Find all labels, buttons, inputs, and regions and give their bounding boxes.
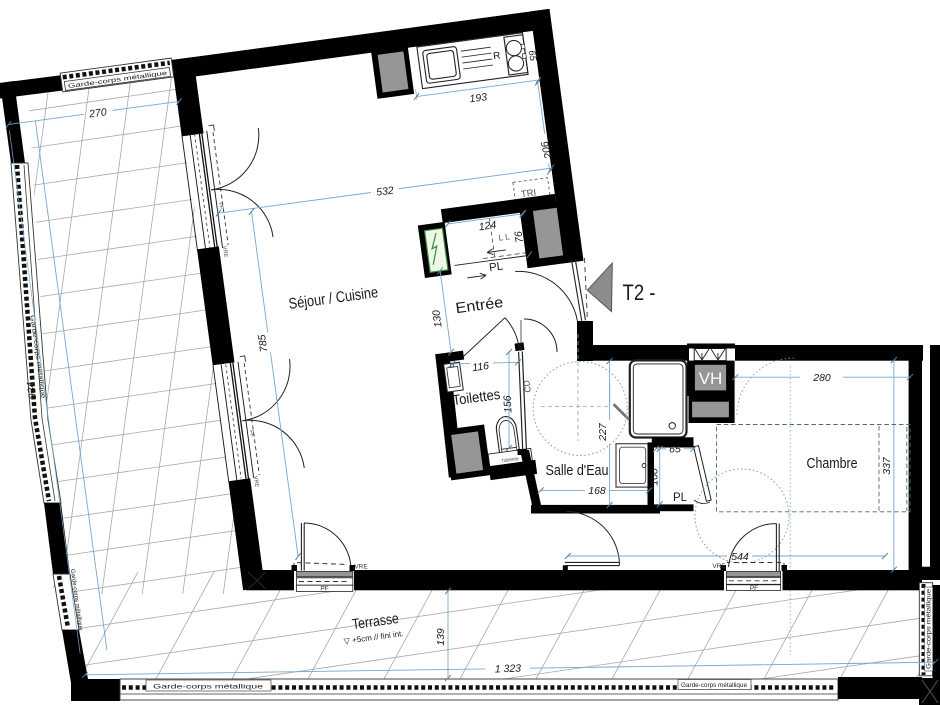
svg-text:337: 337 [881, 456, 893, 475]
svg-text:532: 532 [375, 184, 394, 198]
svg-text:116: 116 [471, 360, 489, 374]
svg-text:65: 65 [669, 444, 681, 456]
svg-text:100: 100 [649, 468, 661, 486]
svg-text:PL: PL [673, 492, 688, 504]
svg-text:VRE: VRE [712, 563, 726, 570]
svg-text:156: 156 [502, 395, 515, 413]
svg-text:L L: L L [498, 231, 511, 242]
svg-text:934: 934 [25, 381, 39, 400]
svg-text:VRE: VRE [354, 564, 368, 571]
svg-text:139: 139 [435, 628, 447, 646]
svg-text:785: 785 [256, 334, 270, 353]
svg-text:R: R [493, 50, 502, 62]
svg-text:544: 544 [731, 551, 749, 563]
svg-text:Garde-corps métallique: Garde-corps métallique [927, 588, 933, 669]
svg-text:1 323: 1 323 [495, 663, 522, 676]
svg-text:PF: PF [750, 585, 758, 592]
svg-text:VH: VH [699, 369, 723, 388]
svg-text:PF: PF [320, 586, 328, 593]
svg-text:168: 168 [588, 485, 606, 497]
svg-text:193: 193 [469, 91, 488, 105]
svg-text:Garde-corps métallique: Garde-corps métallique [681, 683, 748, 689]
svg-text:Chambre: Chambre [807, 455, 858, 472]
svg-text:PL: PL [488, 260, 504, 274]
svg-text:280: 280 [812, 372, 831, 384]
svg-text:227: 227 [597, 422, 609, 442]
svg-text:Garde-corps métallique: Garde-corps métallique [153, 684, 264, 691]
svg-text:130: 130 [430, 309, 444, 328]
svg-text:270: 270 [87, 106, 107, 120]
svg-text:124: 124 [478, 219, 497, 233]
svg-text:Salle d'Eau: Salle d'Eau [546, 462, 609, 479]
svg-text:CD: CD [521, 380, 533, 394]
svg-text:T2 -: T2 - [623, 280, 656, 305]
